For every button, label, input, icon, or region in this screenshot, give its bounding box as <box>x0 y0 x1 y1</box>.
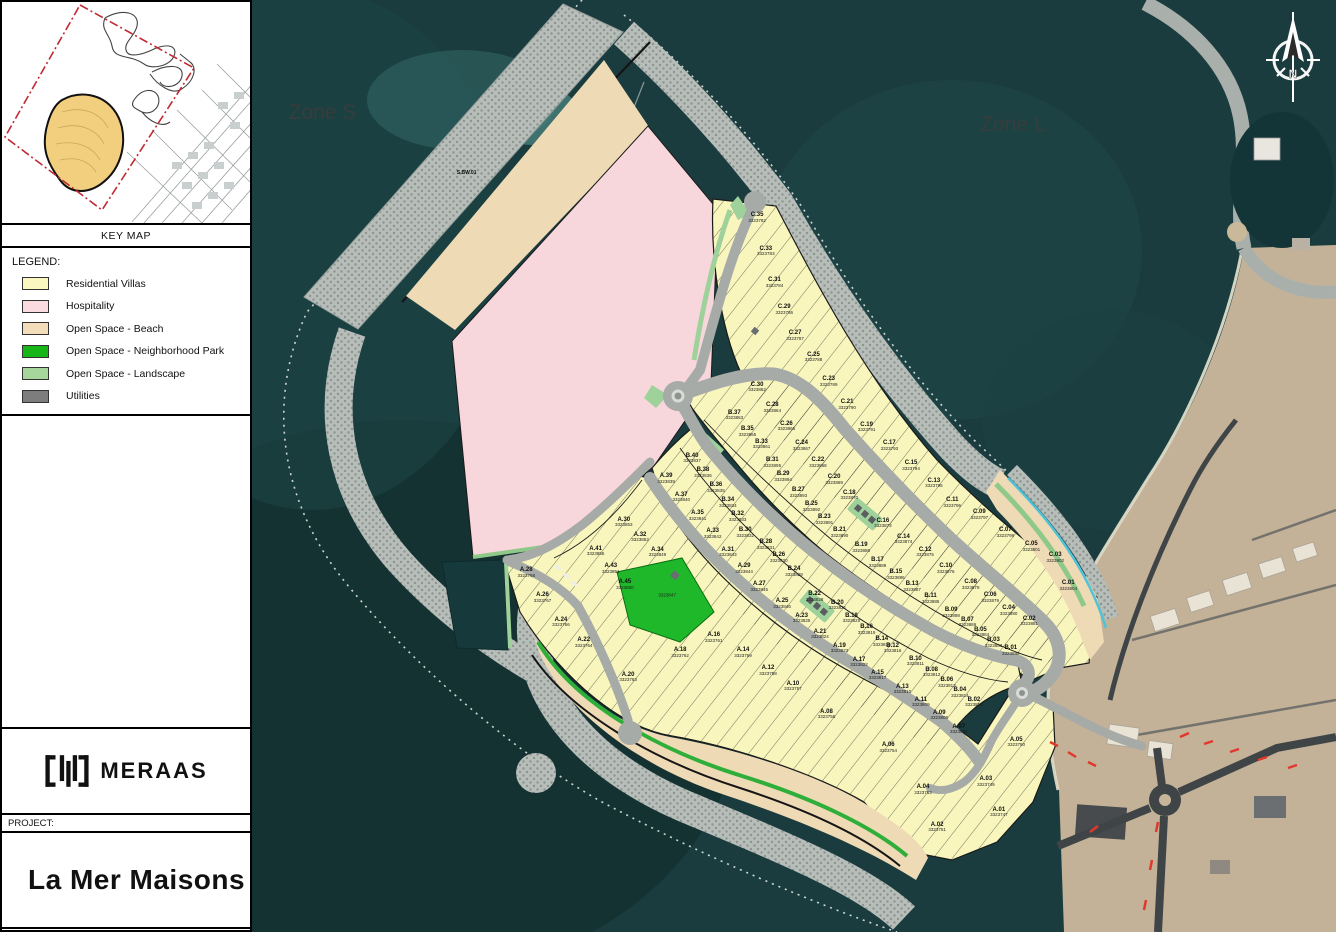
plot-label: A.15 3323817 <box>869 670 887 682</box>
plot-number: 3323866 <box>778 428 796 433</box>
brand-panel: MERAAS <box>0 727 252 815</box>
master-plan-sheet: KEY MAP LEGEND: Residential Villas Hospi… <box>0 0 1336 932</box>
plot-label: B.30 3323832 <box>736 527 754 539</box>
plot-label: C.17 3323793 <box>881 441 899 453</box>
plot-label: A.28 3323768 <box>517 567 535 579</box>
legend-swatch <box>22 390 49 403</box>
plot-label: B.22 3323828 <box>806 592 824 604</box>
plot-number: 3323833 <box>729 518 747 523</box>
plot-number: 3323754 <box>880 749 898 754</box>
plot-number: 3323794 <box>902 467 920 472</box>
plot-number: 3323846 <box>773 605 791 610</box>
plot-number: 3323892 <box>803 508 821 513</box>
plot-number: 3323847 <box>658 593 676 598</box>
plot-label: A.26 3323767 <box>534 593 552 605</box>
plot-label: B.21 3323890 <box>831 527 849 539</box>
plot-number: 3323824 <box>811 636 829 641</box>
plot-label: B.38 3323836 <box>694 468 712 480</box>
plot-number: 3323869 <box>825 481 843 486</box>
plot-label: B.16 3323819 <box>858 624 876 636</box>
plot-label: C.02 3323881 <box>1020 616 1038 628</box>
legend-item-label: Utilities <box>66 390 100 402</box>
plot-label: A.39 3323839 <box>657 473 675 485</box>
plot-label: B.17 3323889 <box>869 557 887 569</box>
plot-label: C.24 3323867 <box>793 441 811 453</box>
plot-number: 3323753 <box>914 791 932 796</box>
plot-number: 3323756 <box>818 716 836 721</box>
plot-number: 3323881 <box>1020 622 1038 627</box>
plot-label: C.28 3323864 <box>764 402 782 414</box>
legend-item: Utilities <box>22 390 250 403</box>
plot-label: B.19 3323888 <box>852 542 870 554</box>
plot-number: 3323830 <box>770 559 788 564</box>
legend-item-label: Residential Villas <box>66 278 146 290</box>
plot-label: C.14 3323874 <box>895 534 913 546</box>
legend-item: Open Space - Landscape <box>22 367 250 380</box>
plot-label: A.16 3323761 <box>705 633 723 645</box>
plot-number: 3323801 <box>1023 548 1041 553</box>
legend-item: Open Space - Neighborhood Park <box>22 345 250 358</box>
plot-label: B.13 3323887 <box>903 581 921 593</box>
plot-label: A.08 3323756 <box>818 709 836 721</box>
plot-number: 3323843 <box>719 554 737 559</box>
plot-label: C.05 3323801 <box>1023 541 1041 553</box>
plot-label: C.06 3323879 <box>981 593 999 605</box>
plot-label: B.03 3323883 <box>985 637 1003 649</box>
plot-number: 3323879 <box>981 599 999 604</box>
plot-number: 3323796 <box>943 504 961 509</box>
plot-label: A.35 3323841 <box>689 511 707 523</box>
plot-label: B.29 3323894 <box>774 471 792 483</box>
project-name: La Mer Maisons <box>2 864 245 896</box>
key-map-thumbnail <box>2 2 250 223</box>
plot-number: 3323757 <box>784 688 802 693</box>
plot-number: 3323799 <box>997 534 1015 539</box>
plot-label: C.31 3323784 <box>766 278 784 290</box>
plot-number: 3323789 <box>820 383 838 388</box>
plot-label: C.10 3323876 <box>937 564 955 576</box>
meraas-logo-icon <box>44 750 90 792</box>
plot-number: 3323767 <box>534 599 552 604</box>
plot-label: C.07 3323799 <box>997 527 1015 539</box>
plot-number: 3323804 <box>1059 587 1077 592</box>
plot-number: 3323890 <box>831 534 849 539</box>
plot-label: B.09 3323898 <box>942 607 960 619</box>
plot-label: C.33 3323783 <box>757 246 775 258</box>
brand-name: MERAAS <box>100 758 207 784</box>
plot-label: B.33 3323861 <box>753 439 771 451</box>
plot-number: 3323793 <box>881 447 899 452</box>
plot-label: B.15 3323896 <box>887 569 905 581</box>
project-label: PROJECT: <box>8 818 54 829</box>
plot-number: 3323839 <box>657 480 675 485</box>
plot-label: A.21 3323824 <box>811 629 829 641</box>
plot-number: 3323850 <box>616 586 634 591</box>
plot-number: 3323862 <box>748 389 766 394</box>
plot-number: 3323761 <box>705 639 723 644</box>
legend-item: Open Space - Beach <box>22 322 250 335</box>
plot-label: A.14 3323759 <box>734 648 752 660</box>
plot-number: 3323841 <box>689 517 707 522</box>
plot-number: 3323883 <box>985 644 1003 649</box>
plot-label: B.10 3323811 <box>907 656 924 668</box>
plot-label: B.27 3323893 <box>790 487 808 499</box>
plot-number: 3323870 <box>841 497 859 502</box>
plot-label: A.45 3323850 <box>616 580 634 592</box>
plot-label: C.11 3323796 <box>943 498 961 510</box>
plot-label: C.19 3323791 <box>858 422 876 434</box>
plot-label: A.32 3323852 <box>631 532 649 544</box>
legend-swatch <box>22 367 49 380</box>
plot-label: A.30 3323853 <box>615 517 633 529</box>
plot-label: C.22 3323868 <box>809 457 827 469</box>
title-block-sidebar: KEY MAP LEGEND: Residential Villas Hospi… <box>0 0 252 932</box>
plot-number: 3323822 <box>850 663 868 668</box>
key-map-caption-text: KEY MAP <box>101 230 151 242</box>
plot-number: 3323849 <box>649 554 667 559</box>
legend-item-label: Open Space - Beach <box>66 323 163 335</box>
plot-number: 3323809 <box>912 704 930 709</box>
plot-label: B.28 3323831 <box>757 539 775 551</box>
key-map-panel <box>0 0 252 225</box>
project-name-panel: La Mer Maisons <box>0 833 252 929</box>
plot-number: 3323893 <box>790 494 808 499</box>
plot-label: A.20 3323763 <box>619 672 637 684</box>
plot-number: 3323751 <box>928 828 946 833</box>
plot-number: 3323896 <box>887 576 905 581</box>
plot-label: A.05 3323750 <box>1007 737 1025 749</box>
plot-label: A.02 3323751 <box>928 822 946 834</box>
plot-number: 3323898 <box>942 614 960 619</box>
legend-title: LEGEND: <box>12 256 250 268</box>
plot-number: 3323887 <box>903 588 921 593</box>
plot-label: 3323847 <box>658 593 676 598</box>
plot-label: B.37 3323863 <box>726 410 744 422</box>
plot-number: 3323817 <box>869 677 887 682</box>
legend-swatch <box>22 277 49 290</box>
plot-label: B.18 3323820 <box>843 613 861 625</box>
north-compass-icon: N <box>1265 10 1321 105</box>
plot-number: 3323786 <box>775 311 793 316</box>
legend-item: Residential Villas <box>22 277 250 290</box>
zone-label: Zone L <box>980 113 1045 137</box>
plot-number: 3323867 <box>793 447 811 452</box>
plot-label: B.01 3323882 <box>1002 646 1020 658</box>
plot-number: 3323885 <box>922 600 940 605</box>
plot-label: A.37 3323840 <box>672 492 690 504</box>
svg-text:N: N <box>1288 67 1297 81</box>
key-map-caption: KEY MAP <box>0 225 252 248</box>
plot-label: C.30 3323862 <box>748 382 766 394</box>
plot-number: 3323840 <box>672 499 690 504</box>
plot-number: 3323832 <box>736 534 754 539</box>
plot-label: C.21 3323790 <box>838 400 856 412</box>
plot-label: C.09 3323797 <box>971 510 989 522</box>
plot-label: C.16 3323873 <box>874 518 892 530</box>
plot-number: 3323788 <box>805 359 823 364</box>
plot-label: A.33 3323842 <box>704 528 722 540</box>
plot-number: 3323837 <box>683 459 701 464</box>
plot-label: B.36 3323835 <box>707 483 725 495</box>
plot-number: 3323845 <box>751 588 769 593</box>
plot-label: A.34 3323849 <box>649 547 667 559</box>
plot-label: C.04 3323880 <box>1000 606 1018 618</box>
plot-number: 3323831 <box>757 546 775 551</box>
plot-label: C.08 3323878 <box>962 580 980 592</box>
plot-number: 3323766 <box>552 623 570 628</box>
plot-label: A.31 3323843 <box>719 547 737 559</box>
plot-number: 3323808 <box>930 717 948 722</box>
plot-number: 3323791 <box>858 429 876 434</box>
plot-label: B.02 3323815 <box>965 697 983 709</box>
plot-number: 3323829 <box>785 573 803 578</box>
legend-item: Hospitality <box>22 300 250 313</box>
plot-label: B.23 3323891 <box>816 514 834 526</box>
plot-number: 3323790 <box>838 406 856 411</box>
plot-number: 3323895 <box>764 464 782 469</box>
legend-item-label: Open Space - Neighborhood Park <box>66 345 224 357</box>
plot-number: 3323852 <box>631 539 649 544</box>
plot-label: A.10 3323757 <box>784 681 802 693</box>
plot-label: A.27 3323845 <box>751 581 769 593</box>
legend-swatch <box>22 322 49 335</box>
plot-label: A.04 3323753 <box>914 785 932 797</box>
plot-label: B.12 3323816 <box>884 643 902 655</box>
plot-number: 3323880 <box>1000 612 1018 617</box>
plot-label: A.06 3323754 <box>880 743 898 755</box>
plot-label: B.32 3323833 <box>729 511 747 523</box>
plot-number: 3323806 <box>950 731 968 736</box>
plot-number: 3323863 <box>726 417 744 422</box>
plot-label: C.23 3323789 <box>820 376 838 388</box>
plot-label: A.07 3323806 <box>950 724 968 736</box>
plot-label: C.25 3323788 <box>805 352 823 364</box>
plot-label: A.09 3323808 <box>930 710 948 722</box>
plot-label: C.01 3323804 <box>1059 580 1077 592</box>
plot-label: B.24 3323829 <box>785 566 803 578</box>
plot-number: 3323875 <box>916 554 934 559</box>
plot-label: A.29 3323844 <box>735 564 753 576</box>
plot-number: 3323795 <box>925 485 943 490</box>
plot-label: C.12 3323875 <box>916 547 934 559</box>
plot-label: C.15 3323794 <box>902 460 920 472</box>
project-label-bar: PROJECT: <box>0 815 252 833</box>
plot-number: 3323750 <box>1007 744 1025 749</box>
plot-number: 3323802 <box>1046 559 1064 564</box>
legend-item-label: Open Space - Landscape <box>66 368 185 380</box>
legend-panel: LEGEND: Residential Villas Hospitality O… <box>0 248 252 416</box>
plot-number: 3323828 <box>806 598 824 603</box>
legend-swatch <box>22 345 49 358</box>
plot-label: C.18 3323870 <box>841 490 859 502</box>
plot-label: B.40 3323837 <box>683 453 701 465</box>
plot-label: C.20 3323869 <box>825 474 843 486</box>
plot-number: 3323821 <box>829 607 847 612</box>
plot-number: 3323783 <box>757 252 775 257</box>
plot-number: 3323759 <box>734 654 752 659</box>
plot-number: 3323758 <box>759 672 777 677</box>
plot-number: 3323868 <box>809 464 827 469</box>
plot-number: 3323888 <box>852 549 870 554</box>
plot-label: A.03 3323749 <box>977 776 995 788</box>
plot-number: 3323889 <box>869 564 887 569</box>
plot-number: 3323825 <box>793 620 811 625</box>
plot-number: 3323784 <box>766 284 784 289</box>
plot-number: 3323764 <box>575 644 593 649</box>
plot-label: B.31 3323895 <box>764 457 782 469</box>
plot-label: A.22 3323764 <box>575 637 593 649</box>
plot-number: 3323787 <box>786 337 804 342</box>
legend-swatch <box>22 300 49 313</box>
plot-number: 3323865 <box>739 433 757 438</box>
plot-label: A.25 3323846 <box>773 598 791 610</box>
plot-number: 3323894 <box>774 478 792 483</box>
plot-number: 3323861 <box>753 445 771 450</box>
plot-number: 3323782 <box>748 219 766 224</box>
plot-label: C.27 3323787 <box>786 331 804 343</box>
plot-number: 3323815 <box>965 704 983 709</box>
breakwater-label: S.BW.01 <box>457 170 477 176</box>
plot-number: 3323836 <box>694 474 712 479</box>
plot-number: 3323768 <box>517 574 535 579</box>
plot-label: C.29 3323786 <box>775 305 793 317</box>
zone-label: Zone S <box>289 101 357 125</box>
plot-number: 3323835 <box>707 489 725 494</box>
legend-item-label: Hospitality <box>66 300 114 312</box>
plot-label: C.26 3323866 <box>778 421 796 433</box>
plot-label: A.11 3323809 <box>912 697 930 709</box>
plot-label: A.19 3323823 <box>831 643 849 655</box>
plot-number: 3323864 <box>764 409 782 414</box>
plot-label: B.34 3323834 <box>719 498 737 510</box>
plot-label: A.18 3323762 <box>671 648 689 660</box>
plot-number: 3323811 <box>907 663 924 668</box>
map-labels-layer: C.35 3323782 C.33 3323783 C.31 3323784 C… <box>252 0 1336 932</box>
plot-number: 3323819 <box>858 631 876 636</box>
plot-number: 3323842 <box>704 535 722 540</box>
plot-number: 3323878 <box>962 586 980 591</box>
plot-label: A.12 3323758 <box>759 665 777 677</box>
plot-number: 3323762 <box>671 654 689 659</box>
plot-label: A.01 3323747 <box>990 807 1008 819</box>
plot-label: A.23 3323825 <box>793 613 811 625</box>
plot-number: 3323882 <box>1002 652 1020 657</box>
plot-number: 3323810 <box>894 691 912 696</box>
plot-label: C.03 3323802 <box>1046 553 1064 565</box>
plot-number: 3323834 <box>719 504 737 509</box>
plot-label: B.20 3323821 <box>829 600 847 612</box>
plot-label: B.25 3323892 <box>803 501 821 513</box>
plot-number: 3323797 <box>971 516 989 521</box>
plot-label: C.13 3323795 <box>925 478 943 490</box>
plot-label: A.24 3323766 <box>552 617 570 629</box>
plot-number: 3323853 <box>615 524 633 529</box>
plot-number: 3323851 <box>602 570 620 575</box>
plot-number: 3323891 <box>816 521 834 526</box>
plot-number: 3323763 <box>619 678 637 683</box>
plot-number: 3323844 <box>735 570 753 575</box>
plot-number: 3323855 <box>587 553 605 558</box>
site-plan-map: C.35 3323782 C.33 3323783 C.31 3323784 C… <box>252 0 1336 932</box>
plot-label: B.26 3323830 <box>770 553 788 565</box>
plot-label: B.11 3323885 <box>922 594 940 606</box>
plot-label: C.35 3323782 <box>748 212 766 224</box>
plot-number: 3323823 <box>831 650 849 655</box>
plot-label: A.43 3323851 <box>602 564 620 576</box>
plot-label: A.41 3323855 <box>587 546 605 558</box>
sidebar-blank-area <box>0 416 252 727</box>
plot-label: A.17 3323822 <box>850 657 868 669</box>
plot-number: 3323874 <box>895 540 913 545</box>
plot-number: 3323876 <box>937 570 955 575</box>
plot-number: 3323873 <box>874 525 892 530</box>
plot-label: A.13 3323810 <box>894 684 912 696</box>
plot-number: 3323749 <box>977 783 995 788</box>
plot-number: 3323747 <box>990 814 1008 819</box>
plot-number: 3323816 <box>884 650 902 655</box>
plot-label: B.35 3323865 <box>739 427 757 439</box>
